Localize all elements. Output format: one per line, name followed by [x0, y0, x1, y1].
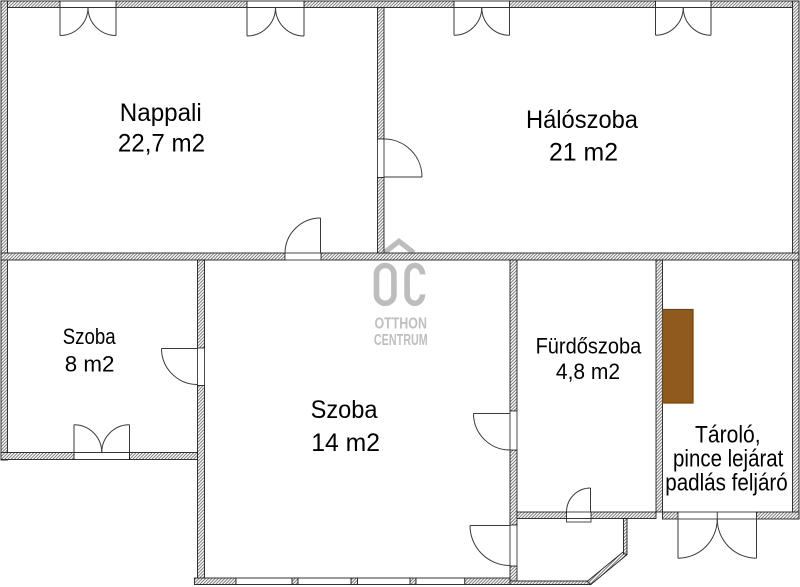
svg-text:Szoba: Szoba	[311, 396, 378, 424]
svg-text:8 m2: 8 m2	[65, 352, 115, 377]
svg-text:4,8 m2: 4,8 m2	[556, 359, 620, 384]
svg-text:Fürdőszoba: Fürdőszoba	[536, 334, 642, 359]
svg-text:Tároló,: Tároló,	[695, 421, 761, 448]
svg-text:14 m2: 14 m2	[311, 429, 380, 457]
svg-text:OTTHON: OTTHON	[374, 315, 427, 332]
svg-text:Nappali: Nappali	[120, 99, 202, 127]
svg-text:Szoba: Szoba	[63, 324, 116, 349]
svg-text:21 m2: 21 m2	[549, 139, 618, 167]
svg-text:pince lejárat: pince lejárat	[673, 446, 784, 473]
svg-text:CENTRUM: CENTRUM	[374, 332, 428, 349]
svg-text:Hálószoba: Hálószoba	[526, 106, 638, 134]
svg-text:padlás feljáró: padlás feljáró	[665, 470, 788, 497]
svg-text:22,7 m2: 22,7 m2	[118, 129, 205, 157]
